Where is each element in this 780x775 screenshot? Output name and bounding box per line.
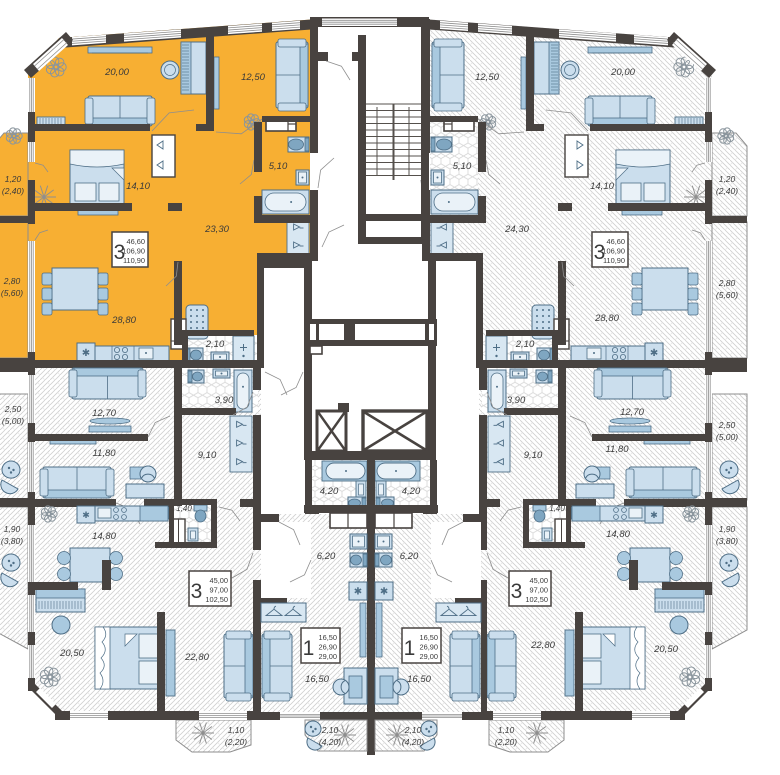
svg-text:3,90: 3,90 — [215, 395, 234, 406]
svg-text:20,50: 20,50 — [653, 644, 678, 655]
svg-text:3: 3 — [191, 580, 203, 603]
svg-text:1,20: 1,20 — [5, 174, 22, 184]
svg-text:(2,40): (2,40) — [2, 186, 24, 196]
svg-text:16,50: 16,50 — [407, 674, 431, 685]
svg-text:2,50: 2,50 — [718, 420, 736, 430]
svg-text:1,10: 1,10 — [498, 725, 515, 735]
svg-text:9,10: 9,10 — [524, 450, 543, 461]
svg-text:97,00: 97,00 — [530, 586, 549, 595]
svg-text:16,50: 16,50 — [420, 633, 439, 642]
svg-text:1,40: 1,40 — [176, 504, 192, 513]
svg-text:(5,00): (5,00) — [2, 416, 24, 426]
svg-text:45,00: 45,00 — [210, 576, 229, 585]
svg-text:(2,20): (2,20) — [225, 737, 247, 747]
svg-text:28,80: 28,80 — [594, 313, 619, 324]
svg-text:11,80: 11,80 — [92, 448, 116, 459]
svg-text:(5,60): (5,60) — [1, 288, 23, 298]
svg-text:102,50: 102,50 — [525, 595, 548, 604]
svg-text:106,90: 106,90 — [122, 247, 145, 256]
svg-text:3,90: 3,90 — [507, 395, 526, 406]
svg-text:2,50: 2,50 — [4, 404, 22, 414]
svg-text:110,90: 110,90 — [603, 256, 625, 265]
svg-text:5,10: 5,10 — [269, 161, 288, 172]
svg-text:26,90: 26,90 — [319, 643, 338, 652]
svg-text:106,90: 106,90 — [602, 247, 625, 256]
svg-text:(5,00): (5,00) — [716, 432, 738, 442]
svg-text:14,10: 14,10 — [126, 181, 150, 192]
svg-text:12,70: 12,70 — [92, 408, 116, 419]
svg-text:3: 3 — [511, 580, 523, 603]
svg-text:14,80: 14,80 — [606, 529, 630, 540]
svg-text:102,50: 102,50 — [205, 595, 228, 604]
svg-text:14,80: 14,80 — [92, 531, 116, 542]
svg-text:24,30: 24,30 — [504, 224, 529, 235]
svg-text:9,10: 9,10 — [198, 450, 217, 461]
svg-text:29,00: 29,00 — [319, 652, 338, 661]
svg-text:1,90: 1,90 — [719, 524, 736, 534]
svg-text:2,10: 2,10 — [515, 339, 535, 350]
svg-text:22,80: 22,80 — [184, 652, 209, 663]
svg-text:4,20: 4,20 — [320, 486, 339, 497]
svg-text:4,20: 4,20 — [402, 486, 421, 497]
svg-text:12,50: 12,50 — [475, 72, 499, 83]
svg-text:✱: ✱ — [82, 510, 90, 520]
svg-text:(3,80): (3,80) — [1, 536, 23, 546]
svg-text:20,50: 20,50 — [59, 648, 84, 659]
svg-text:5,10: 5,10 — [453, 161, 472, 172]
svg-text:1: 1 — [303, 637, 315, 660]
svg-text:46,60: 46,60 — [607, 237, 626, 246]
svg-text:(5,60): (5,60) — [716, 290, 738, 300]
svg-text:✱: ✱ — [82, 348, 90, 359]
svg-text:16,50: 16,50 — [319, 633, 338, 642]
svg-text:1: 1 — [404, 637, 416, 660]
svg-text:23,30: 23,30 — [204, 224, 229, 235]
svg-text:1,90: 1,90 — [4, 524, 21, 534]
svg-text:46,60: 46,60 — [127, 237, 146, 246]
svg-text:20,00: 20,00 — [104, 67, 129, 78]
svg-text:✱: ✱ — [354, 587, 362, 598]
svg-text:(2,20): (2,20) — [495, 737, 517, 747]
svg-text:12,50: 12,50 — [241, 72, 265, 83]
svg-text:45,00: 45,00 — [530, 576, 549, 585]
svg-text:2,10: 2,10 — [404, 725, 422, 735]
svg-text:110,90: 110,90 — [123, 256, 145, 265]
svg-text:1,40: 1,40 — [549, 504, 565, 513]
svg-text:2,80: 2,80 — [3, 276, 21, 286]
svg-text:2,10: 2,10 — [205, 339, 225, 350]
svg-text:2,80: 2,80 — [718, 278, 736, 288]
svg-text:14,10: 14,10 — [590, 181, 614, 192]
svg-text:29,00: 29,00 — [420, 652, 439, 661]
svg-text:11,80: 11,80 — [605, 444, 629, 455]
svg-text:97,00: 97,00 — [210, 586, 229, 595]
svg-text:22,80: 22,80 — [530, 640, 555, 651]
svg-text:(4,20): (4,20) — [402, 737, 424, 747]
svg-text:6,20: 6,20 — [400, 551, 419, 562]
svg-text:1,20: 1,20 — [719, 174, 736, 184]
svg-text:26,90: 26,90 — [420, 643, 439, 652]
svg-text:28,80: 28,80 — [111, 315, 136, 326]
svg-text:6,20: 6,20 — [317, 551, 336, 562]
svg-text:1,10: 1,10 — [228, 725, 245, 735]
svg-text:2,10: 2,10 — [321, 725, 339, 735]
svg-text:(4,20): (4,20) — [319, 737, 341, 747]
svg-text:16,50: 16,50 — [305, 674, 329, 685]
svg-text:(2,40): (2,40) — [716, 186, 738, 196]
svg-text:12,70: 12,70 — [620, 407, 644, 418]
svg-text:20,00: 20,00 — [610, 67, 635, 78]
svg-text:(3,80): (3,80) — [716, 536, 738, 546]
